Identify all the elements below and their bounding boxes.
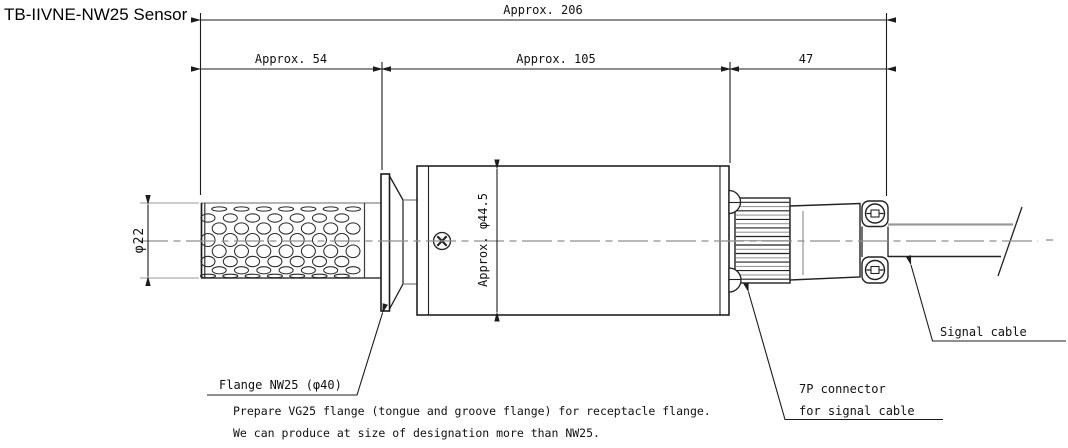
- dim-probe-length: Approx. 54: [255, 52, 327, 66]
- flange-callout: Flange NW25 (φ40): [219, 378, 342, 392]
- dim-overall-length: Approx. 206: [503, 3, 582, 17]
- note-line-2: We can produce at size of designation mo…: [233, 426, 600, 440]
- connector-callout-line2: for signal cable: [799, 404, 915, 418]
- connector-leader: [749, 292, 944, 420]
- dim-body-diameter: Approx. φ44.5: [476, 193, 490, 287]
- dim-body-length: Approx. 105: [516, 52, 595, 66]
- drawing-title: TB-IIVNE-NW25 Sensor: [4, 5, 187, 25]
- dim-connector-length: 47: [799, 52, 813, 66]
- signal-cable-callout: Signal cable: [940, 325, 1027, 339]
- connector-callout-line1: 7P connector: [799, 382, 886, 396]
- note-line-1: Prepare VG25 flange (tongue and groove f…: [233, 404, 711, 418]
- connector-shell: [790, 204, 860, 281]
- probe-mesh-pattern: [201, 207, 361, 278]
- sensor-dimension-drawing: TB-IIVNE-NW25 Sensor Approx. 206 Approx.…: [0, 0, 1068, 448]
- flange-nw25: [381, 174, 417, 311]
- dim-probe-diameter: φ22: [133, 227, 147, 253]
- drawing-canvas: [0, 0, 1068, 448]
- cable-clamp: [862, 201, 888, 283]
